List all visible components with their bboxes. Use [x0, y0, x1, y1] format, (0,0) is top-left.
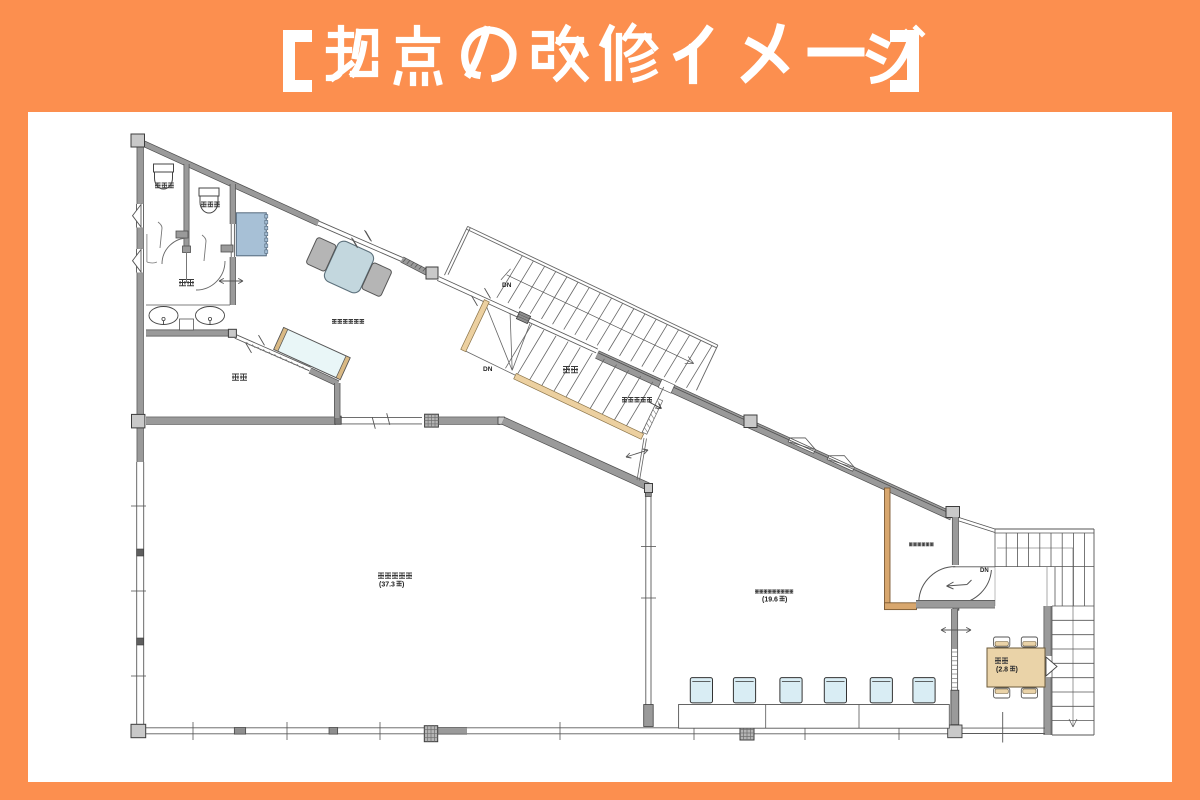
- svg-text:): ): [402, 582, 404, 589]
- svg-text:(37.3: (37.3: [379, 582, 395, 589]
- svg-text:): ): [1016, 667, 1018, 674]
- svg-text:): ): [785, 597, 787, 604]
- svg-text:(19.6: (19.6: [762, 597, 778, 604]
- svg-text:DN: DN: [483, 366, 493, 373]
- svg-text:DN: DN: [980, 568, 989, 574]
- svg-text:(2.8: (2.8: [996, 667, 1008, 674]
- svg-text:DN: DN: [502, 282, 512, 289]
